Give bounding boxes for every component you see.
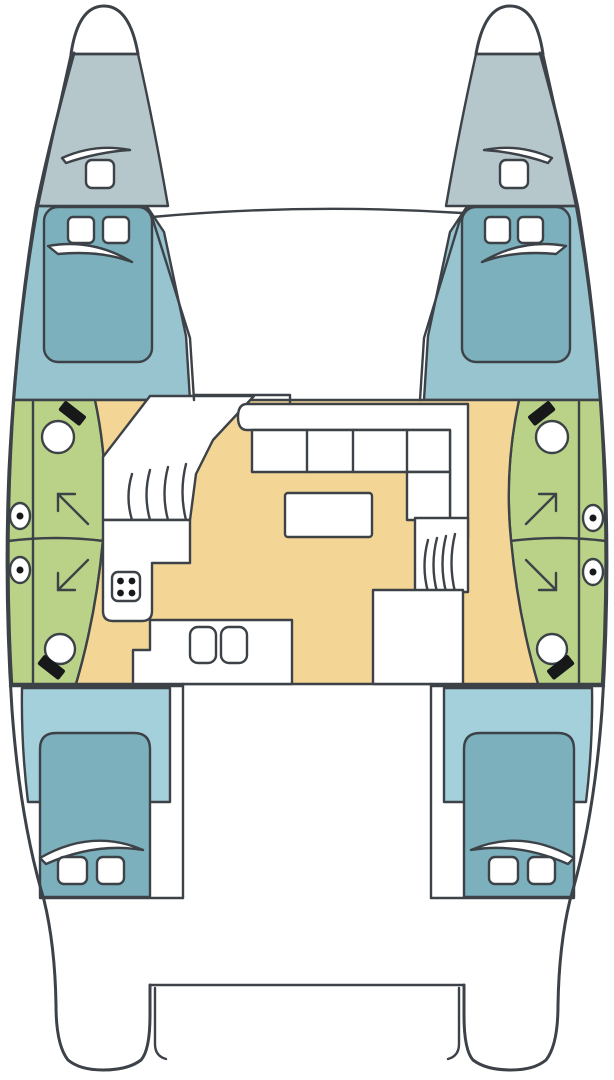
hatch-icon xyxy=(58,857,87,884)
floorplan-svg xyxy=(0,0,614,1080)
hatch-icon xyxy=(97,857,124,884)
hatch-icon xyxy=(68,217,94,243)
hatch-icon xyxy=(489,857,518,884)
trampoline-beam-line xyxy=(152,209,462,217)
port-aft-berth-icon xyxy=(40,733,150,897)
hatch-icon xyxy=(485,217,510,243)
catamaran-floorplan xyxy=(0,0,614,1080)
hatch-icon xyxy=(103,217,129,243)
starboard-companionway xyxy=(415,518,468,592)
hatch-icon xyxy=(528,857,555,884)
starboard-forward-cabin xyxy=(424,206,600,400)
hatch-icon xyxy=(500,160,528,188)
foredeck-lines xyxy=(152,209,462,404)
aft-galley-module xyxy=(373,590,463,684)
starboard-aft-cabin xyxy=(444,688,592,897)
port-aft-cabin xyxy=(22,688,170,897)
port-bow-arch xyxy=(71,6,138,54)
port-forward-cabin xyxy=(14,206,190,400)
porthole-icon xyxy=(583,505,603,531)
stove-icon xyxy=(112,572,140,601)
starboard-forward-berth-icon xyxy=(462,207,570,362)
port-forward-berth-icon xyxy=(44,207,152,362)
hatch-icon xyxy=(86,160,114,188)
settee-cushions xyxy=(252,430,450,472)
settee-corner-cushion xyxy=(407,472,450,520)
porthole-icon xyxy=(10,503,30,529)
hatch-icon xyxy=(518,217,543,243)
porthole-icon xyxy=(10,557,30,583)
starboard-bow-arch xyxy=(476,6,543,54)
porthole-icon xyxy=(583,559,603,585)
salon-table xyxy=(285,493,372,537)
